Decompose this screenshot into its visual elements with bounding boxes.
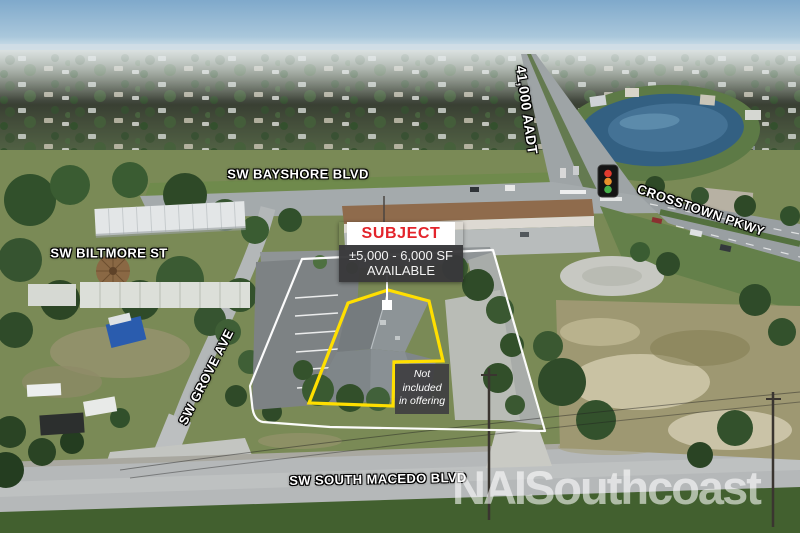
street-label-macedo: SW SOUTH MACEDO BLVD xyxy=(289,470,467,488)
storage-units xyxy=(28,282,250,308)
white-pickup xyxy=(27,383,62,397)
sky xyxy=(0,0,800,52)
street-label-bayshore: SW BAYSHORE BLVD xyxy=(227,167,368,182)
exclusion-line-2: included xyxy=(395,382,449,396)
brand-prefix: NAI xyxy=(452,461,524,514)
exclusion-note: Not included in offering xyxy=(395,364,449,414)
subject-callout: SUBJECT ±5,000 - 6,000 SF AVAILABLE xyxy=(339,222,463,282)
traffic-light-icon xyxy=(598,165,618,197)
exclusion-line-1: Not xyxy=(395,368,449,382)
callout-marker xyxy=(382,300,392,310)
brand-name: Southcoast xyxy=(524,461,760,514)
brand-watermark: NAISouthcoast xyxy=(452,464,760,511)
availability-line: AVAILABLE xyxy=(339,263,463,278)
exclusion-line-3: in offering xyxy=(395,395,449,409)
aerial-listing-image: SW BAYSHORE BLVD SW BILTMORE ST SW GROVE… xyxy=(0,0,800,533)
availability-text: ±5,000 - 6,000 SF AVAILABLE xyxy=(339,245,463,282)
street-label-biltmore: SW BILTMORE ST xyxy=(50,246,167,261)
subject-title: SUBJECT xyxy=(347,222,455,245)
size-line: ±5,000 - 6,000 SF xyxy=(339,248,463,263)
container xyxy=(39,412,84,435)
